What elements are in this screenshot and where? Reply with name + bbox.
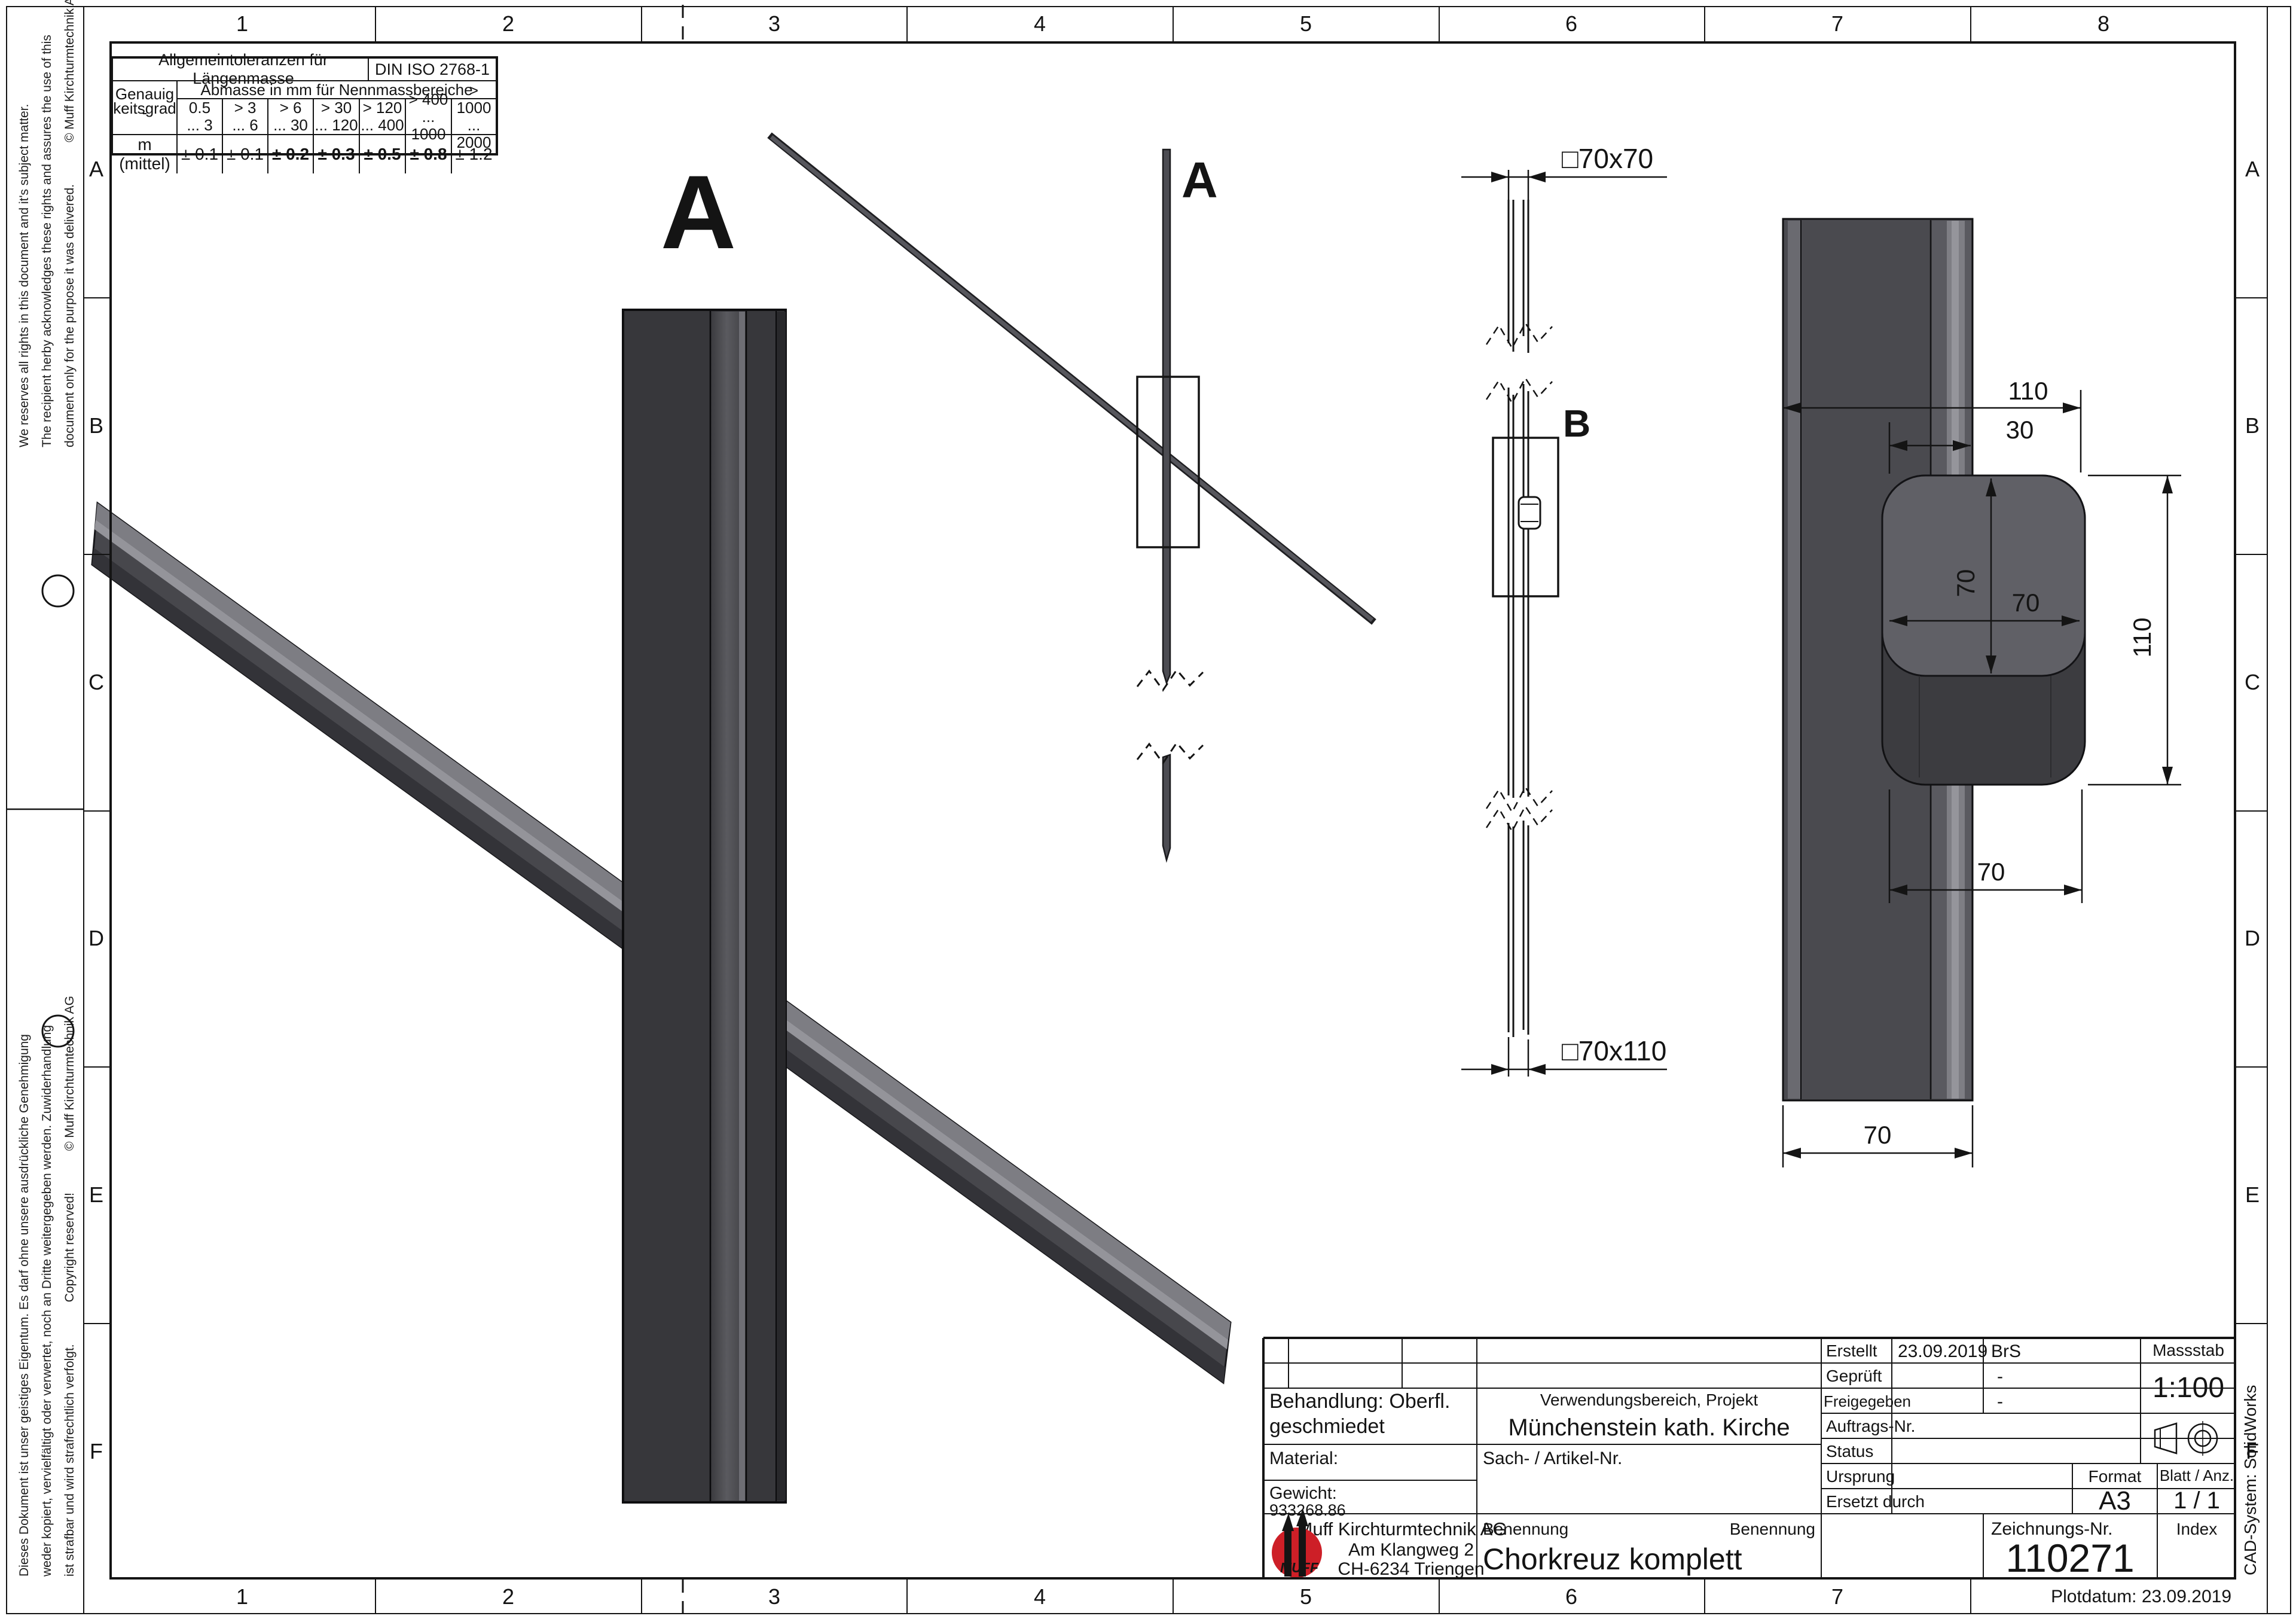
right-band-line — [2267, 6, 2268, 1613]
margin-note-de-line2: weder kopiert, vervielfältigt oder verwe… — [36, 996, 59, 1577]
zone-col-1: 1 — [206, 6, 278, 41]
zone-tick — [375, 1580, 376, 1613]
range-col-7: > 1000... 2000 — [452, 99, 496, 135]
margin-note-en-line3: document only for the purpose it was del… — [59, 0, 81, 447]
zone-row-b-right: B — [2237, 414, 2267, 438]
margin-note-en: We reserves all rights in this document … — [13, 0, 81, 447]
zone-tick — [1439, 6, 1440, 41]
zone-row-b: B — [83, 414, 109, 438]
zone-col-7-bottom: 7 — [1802, 1581, 1873, 1613]
zone-tick — [641, 6, 642, 41]
zone-tick — [83, 554, 109, 555]
zone-tick — [1173, 1580, 1174, 1613]
drawing-frame — [109, 41, 2236, 1580]
tolerance-table: Allgemeintoleranzen für Längenmasse DIN … — [111, 56, 498, 156]
zone-tick — [2236, 297, 2268, 298]
zone-row-e-right: E — [2237, 1183, 2267, 1207]
cad-system-note: CAD-System: SolidWorks — [2241, 1385, 2260, 1575]
margin-note-en-copyright: © Muff Kirchturmtechnik AG — [63, 0, 77, 142]
range-col-6: > 400... 1000 — [406, 99, 452, 135]
range-col-2: > 3... 6 — [223, 99, 268, 135]
margin-note-de: Dieses Dokument ist unser geistiges Eige… — [13, 996, 81, 1577]
zone-tick — [2236, 810, 2268, 812]
zone-tick — [906, 6, 908, 41]
margin-note-de-line3: ist strafbar und wird strafrechtlich ver… — [59, 996, 81, 1577]
margin-note-de-copyright1: Copyright reserved! — [63, 1193, 77, 1302]
grade-header-line2: keitsgrad — [113, 99, 178, 135]
tol-value-1: ± 0.1 — [178, 135, 223, 173]
margin-note-en-line1: We reserves all rights in this document … — [13, 0, 36, 447]
zone-row-e: E — [83, 1183, 109, 1207]
tol-value-7: ± 1.2 — [452, 135, 496, 173]
zone-col-7: 7 — [1802, 6, 1873, 41]
zone-tick — [2236, 1066, 2268, 1068]
zone-col-5: 5 — [1270, 6, 1342, 41]
zone-col-4-bottom: 4 — [1004, 1581, 1076, 1613]
zone-row-f: F — [83, 1440, 109, 1463]
drawing-sheet: A A — [0, 0, 2296, 1619]
zone-row-a-right: A — [2237, 157, 2267, 181]
zone-col-1-bottom: 1 — [206, 1581, 278, 1613]
zone-tick — [2236, 1323, 2268, 1324]
zone-tick — [2236, 554, 2268, 555]
zone-col-3-bottom: 3 — [738, 1581, 810, 1613]
range-col-4: > 30... 120 — [314, 99, 360, 135]
margin-note-en-line2: The recipient herby acknowledges these r… — [36, 0, 59, 447]
tol-value-4: ± 0.3 — [314, 135, 360, 173]
plotdatum: Plotdatum: 23.09.2019 — [1997, 1583, 2231, 1611]
margin-note-de-copyright2: © Muff Kirchturmtechnik AG — [63, 996, 77, 1151]
tolerance-title: Allgemeintoleranzen für Längenmasse — [113, 59, 369, 81]
tol-value-6: ± 0.8 — [406, 135, 452, 173]
left-band-line — [83, 6, 84, 1613]
range-col-3: > 6... 30 — [268, 99, 314, 135]
zone-col-8: 8 — [2068, 6, 2139, 41]
zone-tick — [1704, 1580, 1705, 1613]
tol-value-2: ± 0.1 — [223, 135, 268, 173]
zone-row-c: C — [83, 670, 109, 694]
tol-value-5: ± 0.5 — [360, 135, 406, 173]
zone-tick — [1439, 1580, 1440, 1613]
zone-tick — [1970, 1580, 1971, 1613]
zone-row-d: D — [83, 926, 109, 950]
zone-col-3: 3 — [738, 6, 810, 41]
zone-row-d-right: D — [2237, 926, 2267, 950]
zone-tick — [1704, 6, 1705, 41]
grade-row-label: m (mittel) — [113, 135, 178, 173]
zone-tick — [83, 810, 109, 812]
zone-row-a: A — [83, 157, 109, 181]
zone-col-2: 2 — [472, 6, 544, 41]
zone-tick — [83, 1323, 109, 1324]
zone-tick — [1970, 6, 1971, 41]
zone-tick — [83, 297, 109, 298]
zone-col-4: 4 — [1004, 6, 1076, 41]
zone-col-5-bottom: 5 — [1270, 1581, 1342, 1613]
range-col-5: > 120... 400 — [360, 99, 406, 135]
zone-row-c-right: C — [2237, 670, 2267, 694]
tol-value-3: ± 0.2 — [268, 135, 314, 173]
zone-tick — [1173, 6, 1174, 41]
zone-tick — [375, 6, 376, 41]
zone-tick — [83, 1066, 109, 1068]
zone-tick — [641, 1580, 642, 1613]
zone-col-2-bottom: 2 — [472, 1581, 544, 1613]
zone-col-6: 6 — [1535, 6, 1607, 41]
tolerance-standard: DIN ISO 2768-1 — [369, 59, 496, 81]
range-col-1: 0.5... 3 — [178, 99, 223, 135]
zone-col-6-bottom: 6 — [1535, 1581, 1607, 1613]
grade-header-line1: Genauig - — [113, 81, 178, 99]
margin-note-de-line1: Dieses Dokument ist unser geistiges Eige… — [13, 996, 36, 1577]
zone-tick — [906, 1580, 908, 1613]
